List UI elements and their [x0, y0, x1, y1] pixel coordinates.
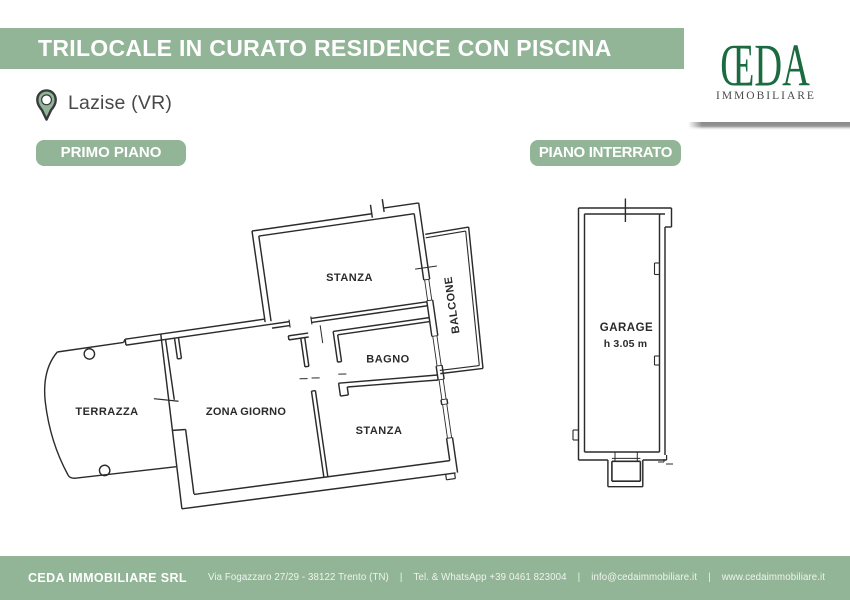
svg-text:h 3.05 m: h 3.05 m: [604, 338, 648, 350]
svg-text:BAGNO: BAGNO: [366, 354, 409, 366]
svg-text:STANZA: STANZA: [356, 425, 403, 437]
svg-text:BALCONE: BALCONE: [443, 275, 463, 334]
svg-text:STANZA: STANZA: [326, 272, 373, 284]
svg-text:GARAGE: GARAGE: [600, 322, 653, 334]
svg-text:TERRAZZA: TERRAZZA: [75, 406, 138, 418]
svg-text:ZONA GIORNO: ZONA GIORNO: [206, 406, 286, 418]
